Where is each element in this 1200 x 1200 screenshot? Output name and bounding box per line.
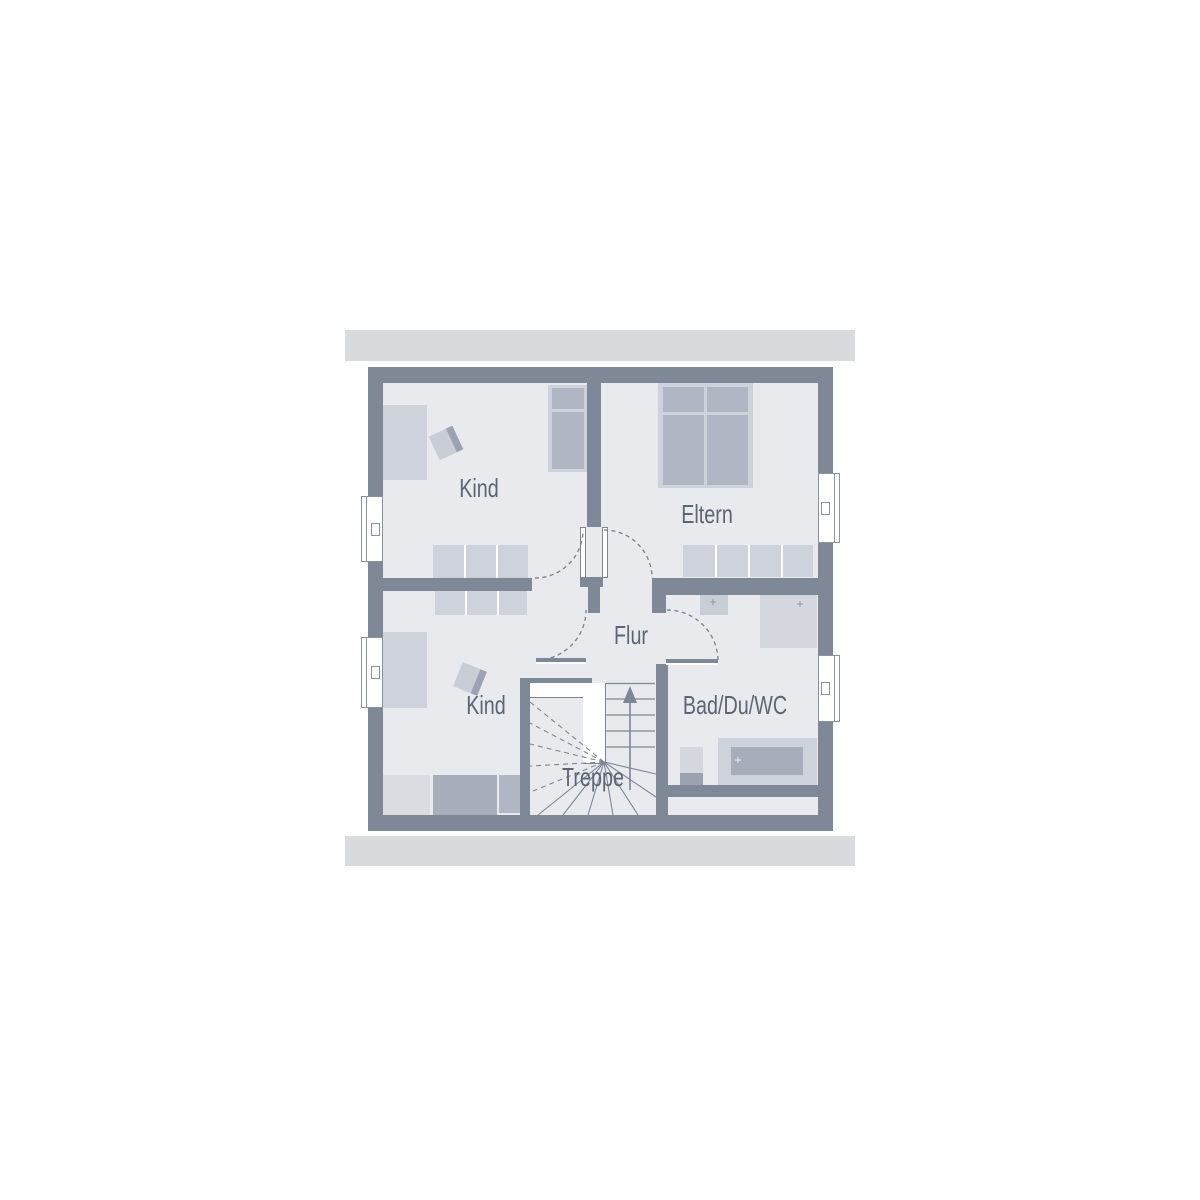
window-frame-line bbox=[366, 638, 367, 707]
door-arc-kind-bottom bbox=[536, 610, 586, 660]
window-frame-line bbox=[834, 656, 835, 721]
stair-up-arrow bbox=[623, 686, 637, 790]
washbasin-mark: + bbox=[709, 596, 716, 608]
window-frame-line bbox=[834, 474, 835, 542]
floor-plan-canvas: + + + Kind Eltern Kind Flur Bad/Du/WC Tr… bbox=[0, 0, 1200, 1200]
linework-overlay bbox=[0, 0, 1200, 1200]
window-handle bbox=[371, 523, 380, 536]
window-frame-line bbox=[366, 497, 367, 561]
label-kind-top: Kind bbox=[459, 475, 499, 501]
label-eltern: Eltern bbox=[681, 501, 733, 527]
door-arc-bad bbox=[667, 610, 718, 661]
window-handle bbox=[821, 682, 830, 695]
door-arc-eltern bbox=[604, 530, 652, 578]
window-eltern bbox=[818, 473, 840, 543]
label-bad: Bad/Du/WC bbox=[683, 692, 787, 718]
label-flur: Flur bbox=[614, 622, 648, 648]
bathtub-mark: + bbox=[734, 754, 741, 766]
shower-mark: + bbox=[796, 598, 803, 610]
window-kind-top bbox=[361, 496, 383, 562]
label-treppe: Treppe bbox=[562, 764, 624, 790]
label-kind-bottom: Kind bbox=[466, 692, 506, 718]
window-handle bbox=[371, 666, 380, 679]
window-bad bbox=[818, 655, 840, 722]
window-kind-bottom bbox=[361, 637, 383, 708]
door-arc-kind-top bbox=[535, 530, 583, 578]
window-handle bbox=[821, 502, 830, 515]
